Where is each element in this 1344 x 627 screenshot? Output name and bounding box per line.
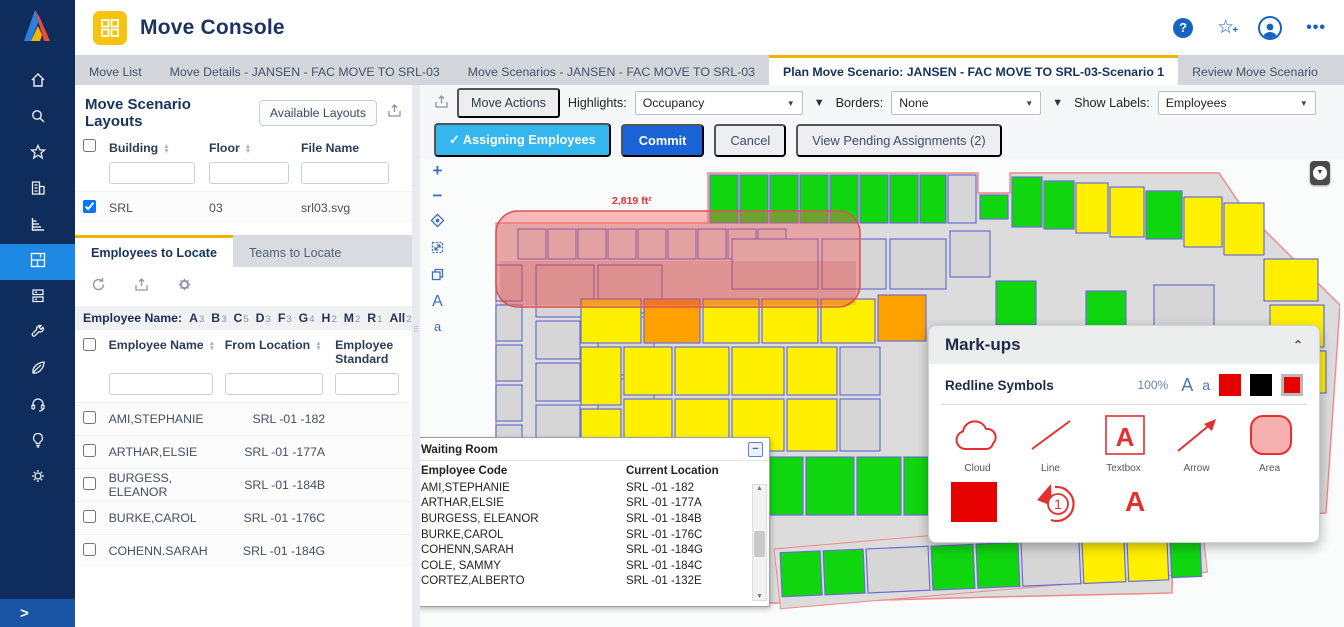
sort-icon[interactable]: ▲▼ [245, 144, 251, 154]
map-panel: Move Actions Highlights: Occupancy▼ ▼ Bo… [420, 85, 1344, 627]
col-building: Building [109, 141, 158, 155]
action-bar: ✓ Assigning Employees Commit Cancel View… [420, 121, 1344, 159]
export-icon[interactable] [387, 103, 402, 123]
sidebar-item-favorites[interactable] [0, 136, 75, 172]
floorplan-icon [29, 251, 47, 274]
letter-chip[interactable]: R [367, 311, 376, 325]
scroll-up-icon[interactable]: ▲ [756, 485, 763, 492]
col-from-location: From Location [225, 338, 310, 352]
waiting-room-row[interactable]: AMI,STEPHANIESRL -01 -182 [421, 480, 763, 496]
employees-header-row: Employee Name▲▼ From Location▲▼ Employee… [75, 330, 412, 368]
page-title: Move Console [140, 16, 285, 40]
letter-chip[interactable]: M [344, 311, 354, 325]
cell-employee-name: COHENN.SARAH [109, 544, 225, 558]
leaf-icon [29, 359, 47, 382]
export-plan-icon[interactable] [434, 94, 449, 112]
svg-text:1: 1 [1054, 496, 1062, 512]
letter-filter-label: Employee Name: [83, 311, 182, 325]
layouts-header-row: Building▲▼ Floor▲▼ File Name [75, 139, 412, 157]
refresh-icon[interactable] [91, 277, 106, 296]
locate-tabs: Employees to Locate Teams to Locate [75, 235, 412, 267]
employee-name-filter-input[interactable] [109, 373, 213, 395]
top-header: Move Console ? ☆+ ••• [75, 0, 1344, 55]
chevron-down-icon: ▼ [1300, 99, 1308, 108]
commit-button[interactable]: Commit [621, 124, 705, 157]
chevron-right-icon: > [20, 605, 29, 622]
tab-review-move-scenario[interactable]: Review Move Scenario [1178, 55, 1332, 85]
sidebar-item-reports[interactable] [0, 208, 75, 244]
layouts-filter-row [75, 157, 412, 191]
employee-row[interactable]: BURKE,CAROL SRL -01 -176C [75, 501, 412, 534]
letter-chip[interactable]: A [189, 311, 198, 325]
sort-icon[interactable]: ▲▼ [209, 341, 215, 351]
assigning-employees-button[interactable]: ✓ Assigning Employees [434, 123, 611, 157]
waiting-room-row[interactable]: ARTHAR,ELSIESRL -01 -177A [421, 496, 763, 512]
letter-chip[interactable]: D [256, 311, 265, 325]
sidebar-item-ideas[interactable] [0, 424, 75, 460]
fit-extent-icon[interactable] [430, 240, 445, 257]
col-file-name: File Name [301, 141, 396, 155]
employee-row-checkbox[interactable] [83, 444, 96, 457]
floor-filter-input[interactable] [209, 162, 289, 184]
sidebar-item-home[interactable] [0, 64, 75, 100]
layout-row-srl03[interactable]: SRL 03 srl03.svg [75, 191, 412, 223]
map-toolbar: Move Actions Highlights: Occupancy▼ ▼ Bo… [420, 85, 1344, 121]
favorite-add-icon[interactable]: ☆+ [1217, 19, 1234, 37]
waiting-room-panel: Waiting Room − Employee Code Current Loc… [420, 437, 770, 607]
show-labels-select[interactable]: Employees▼ [1158, 91, 1316, 115]
server-icon [29, 287, 47, 310]
symbol-zoom-level: 100% [1137, 378, 1168, 392]
tab-move-details[interactable]: Move Details - JANSEN - FAC MOVE TO SRL-… [156, 55, 454, 85]
user-avatar-icon[interactable] [1258, 16, 1282, 40]
tab-teams-to-locate[interactable]: Teams to Locate [233, 235, 412, 267]
chevron-down-icon: ▼ [787, 99, 795, 108]
app-root: > Move Console ? ☆+ ••• Move List Move D… [0, 0, 1344, 627]
letter-chip[interactable]: H [322, 311, 331, 325]
waiting-room-title: Waiting Room [421, 444, 498, 456]
employee-row-checkbox[interactable] [83, 510, 96, 523]
header-icons: ? ☆+ ••• [1173, 16, 1326, 40]
text-size-large-icon[interactable]: A [1181, 375, 1193, 396]
symbol-textbox[interactable]: A Textbox [1087, 413, 1160, 474]
employees-filter-row [75, 368, 412, 402]
file-name-filter-input[interactable] [301, 162, 389, 184]
move-actions-button[interactable]: Move Actions [457, 88, 560, 118]
available-layouts-button[interactable]: Available Layouts [259, 100, 377, 126]
cell-from-location: SRL -01 -184G [225, 544, 335, 558]
chevron-down-icon: ▼ [1313, 166, 1327, 180]
employee-standard-filter-input[interactable] [335, 373, 399, 395]
headset-icon [29, 395, 47, 418]
sidebar-item-settings[interactable] [0, 460, 75, 496]
wrench-icon [29, 323, 47, 346]
minimize-button[interactable]: − [748, 442, 763, 457]
sidebar-item-search[interactable] [0, 100, 75, 136]
cloud-icon [951, 413, 1005, 457]
waiting-room-row[interactable]: BURKE,CAROLSRL -01 -176C [421, 527, 763, 543]
cell-employee-name: ARTHAR,ELSIE [109, 445, 225, 459]
layout-row-checkbox[interactable] [83, 200, 96, 213]
building-icon [29, 179, 47, 202]
layouts-panel-title: Move Scenario Layouts [85, 96, 249, 130]
line-icon [1024, 413, 1078, 457]
label-size-large-icon[interactable]: A [432, 294, 443, 309]
sidebar-item-floorplan-active[interactable] [0, 244, 75, 280]
letter-chip[interactable]: G [299, 311, 309, 325]
symbol-arrow[interactable]: Arrow [1160, 413, 1233, 474]
fill-color-swatch[interactable] [1281, 374, 1303, 396]
cell-employee-name: BURKE,CAROL [109, 511, 225, 525]
map-zoom-tools: + − A a [430, 163, 445, 334]
color-swatch-black[interactable] [1250, 374, 1272, 396]
more-icon[interactable]: ••• [1306, 19, 1326, 37]
textbox-icon: A [1097, 413, 1151, 457]
main-column: Move Console ? ☆+ ••• Move List Move Det… [75, 0, 1344, 627]
scroll-thumb[interactable] [754, 531, 765, 557]
col-employee-name: Employee Name [109, 338, 204, 352]
cell-employee-name: AMI,STEPHANIE [109, 412, 225, 426]
tab-move-scenarios[interactable]: Move Scenarios - JANSEN - FAC MOVE TO SR… [454, 55, 769, 85]
col-current-location: Current Location [626, 465, 719, 477]
text-size-small-icon[interactable]: a [1202, 377, 1210, 393]
letter-chip[interactable]: B [211, 311, 220, 325]
borders-label: Borders: [836, 96, 884, 110]
cell-from-location: SRL -01 -182 [225, 412, 335, 426]
area-icon [1243, 413, 1297, 457]
sidebar-item-buildings[interactable] [0, 172, 75, 208]
col-employee-code: Employee Code [421, 465, 626, 477]
symbol-grid: Cloud Line A Textbox [929, 405, 1319, 474]
tab-plan-move-scenario[interactable]: Plan Move Scenario: JANSEN - FAC MOVE TO… [769, 55, 1178, 85]
markups-panel: Mark-ups ⌃ Redline Symbols 100% A a [928, 325, 1320, 543]
sidebar-expand-button[interactable]: > [0, 599, 75, 627]
sort-icon[interactable]: ▲▼ [315, 341, 321, 351]
star-icon [29, 143, 47, 166]
employee-row[interactable]: AMI,STEPHANIE SRL -01 -182 [75, 402, 412, 435]
cell-from-location: SRL -01 -176C [225, 511, 335, 525]
symbol-letter[interactable]: A [1125, 486, 1145, 518]
waiting-room-row[interactable]: COHENN,SARAHSRL -01 -184G [421, 542, 763, 558]
cell-from-location: SRL -01 -177A [225, 445, 335, 459]
employees-select-all-checkbox[interactable] [83, 338, 96, 351]
sidebar-item-assets[interactable] [0, 280, 75, 316]
employee-row[interactable]: BURGESS, ELEANOR SRL -01 -184B [75, 468, 412, 501]
employees-toolbar [75, 267, 412, 306]
chevron-up-icon[interactable]: ⌃ [1293, 338, 1303, 352]
borders-select[interactable]: None▼ [891, 91, 1041, 115]
letter-chip[interactable]: F [278, 311, 286, 325]
waiting-room-scrollbar[interactable]: ▲ ▼ [752, 484, 767, 601]
zoom-out-icon[interactable]: − [433, 188, 443, 203]
svg-text:A: A [1115, 422, 1134, 452]
employee-row[interactable]: COHENN.SARAH SRL -01 -184G [75, 534, 412, 567]
scroll-down-icon[interactable]: ▼ [756, 593, 763, 600]
app-grid-icon[interactable] [93, 11, 127, 45]
highlights-select[interactable]: Occupancy▼ [635, 91, 803, 115]
sidebar-item-support[interactable] [0, 388, 75, 424]
highlights-filter-button[interactable]: ▼ [814, 97, 825, 109]
chevron-down-icon: ▼ [1025, 99, 1033, 108]
drag-handle-icon: ⠿ [413, 328, 419, 332]
archibus-logo-icon [19, 5, 57, 45]
col-employee-standard: Employee Standard [335, 338, 404, 366]
symbol-area[interactable]: Area [1233, 413, 1306, 474]
letter-chip-all[interactable]: All [389, 311, 405, 325]
zoom-in-icon[interactable]: + [433, 163, 443, 178]
panel-collapse-button[interactable]: ▼ [1310, 161, 1330, 185]
layouts-select-all-checkbox[interactable] [83, 139, 96, 152]
sidebar-item-maintenance[interactable] [0, 316, 75, 352]
waiting-room-row[interactable]: BURGESS, ELEANORSRL -01 -184B [421, 511, 763, 527]
center-view-icon[interactable] [430, 213, 445, 230]
employee-row-checkbox[interactable] [83, 411, 96, 424]
floor-plan-canvas[interactable]: + − A a [420, 159, 1344, 627]
tab-bar: Move List Move Details - JANSEN - FAC MO… [75, 55, 1344, 85]
home-icon [29, 71, 47, 94]
markup-area-label: 2,819 ft² [612, 195, 652, 207]
tab-employees-to-locate[interactable]: Employees to Locate [75, 235, 233, 267]
sidebar-nav [0, 64, 75, 496]
cell-employee-name: BURGESS, ELEANOR [109, 471, 225, 499]
left-panel: Move Scenario Layouts Available Layouts … [75, 85, 412, 627]
building-filter-input[interactable] [109, 162, 195, 184]
symbol-line[interactable]: Line [1014, 413, 1087, 474]
show-labels-label: Show Labels: [1074, 96, 1150, 110]
export-icon[interactable] [134, 277, 149, 296]
highlights-label: Highlights: [568, 96, 627, 110]
waiting-room-row[interactable]: CORTEZ,ALBERTOSRL -01 -132E [421, 574, 763, 590]
view-pending-assignments-button[interactable]: View Pending Assignments (2) [796, 124, 1001, 157]
sort-icon[interactable]: ▲▼ [163, 144, 169, 154]
color-swatch-red[interactable] [1219, 374, 1241, 396]
symbol-revision-rotate[interactable]: 1 [1035, 478, 1087, 526]
app-logo[interactable] [19, 5, 57, 50]
sidebar: > [0, 0, 75, 627]
cell-file-name: srl03.svg [301, 201, 396, 215]
from-location-filter-input[interactable] [225, 373, 323, 395]
cell-building: SRL [109, 201, 209, 215]
gear-icon[interactable] [177, 277, 192, 296]
waiting-room-list: AMI,STEPHANIESRL -01 -182 ARTHAR,ELSIESR… [420, 479, 769, 590]
cell-from-location: SRL -01 -184B [225, 478, 335, 492]
search-icon [29, 107, 47, 130]
help-icon[interactable]: ? [1173, 18, 1193, 38]
symbol-cloud[interactable]: Cloud [941, 413, 1014, 474]
borders-filter-button[interactable]: ▼ [1052, 97, 1063, 109]
label-size-small-icon[interactable]: a [434, 319, 441, 334]
cell-floor: 03 [209, 201, 301, 215]
gear-icon [29, 467, 47, 490]
lightbulb-icon [29, 431, 47, 454]
tab-move-list[interactable]: Move List [75, 55, 156, 85]
waiting-room-row[interactable]: COLE, SAMMYSRL -01 -184C [421, 558, 763, 574]
employee-row-checkbox[interactable] [83, 543, 96, 556]
sidebar-item-sustainability[interactable] [0, 352, 75, 388]
markups-title: Mark-ups [945, 335, 1021, 355]
employee-row-checkbox[interactable] [83, 477, 96, 490]
cancel-button[interactable]: Cancel [714, 124, 786, 157]
panel-splitter[interactable]: ⠿ [412, 85, 420, 627]
redline-area-markup[interactable] [496, 211, 860, 307]
symbol-filled-square[interactable] [951, 482, 997, 522]
col-floor: Floor [209, 141, 240, 155]
employee-row[interactable]: ARTHAR,ELSIE SRL -01 -177A [75, 435, 412, 468]
content-area: Move Scenario Layouts Available Layouts … [75, 85, 1344, 627]
arrow-icon [1170, 413, 1224, 457]
redline-symbols-title: Redline Symbols [945, 378, 1128, 393]
employee-letter-filter: Employee Name:A3B3C5D3F3G4H2M2R1All26 [75, 306, 412, 330]
layers-icon[interactable] [430, 267, 445, 284]
chart-icon [29, 215, 47, 238]
letter-chip[interactable]: C [233, 311, 242, 325]
